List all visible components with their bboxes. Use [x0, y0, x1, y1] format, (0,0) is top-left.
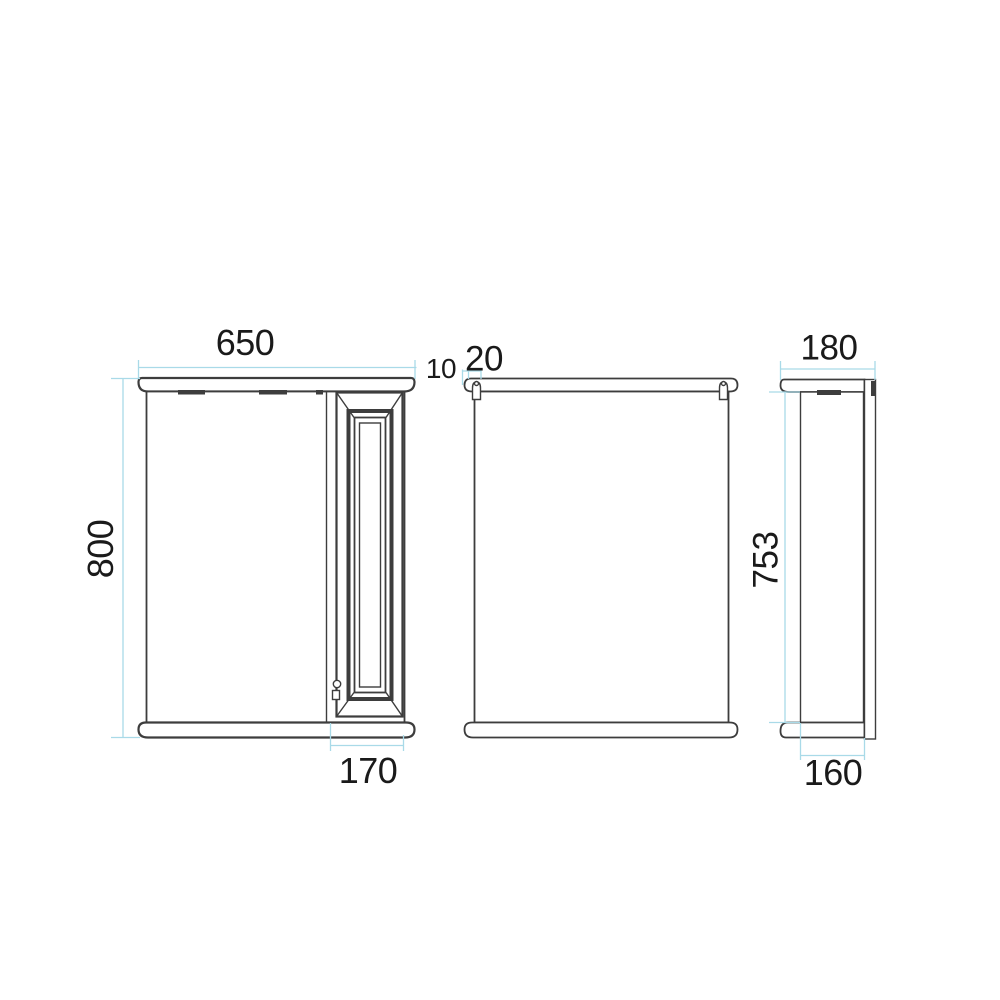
dim-label-hanger-small: 10 [426, 355, 456, 383]
lamp-slot-mark [316, 390, 323, 395]
dim-650 [138, 360, 417, 379]
mirror-cabinet-drawing [0, 0, 1000, 1000]
side-bottom-plinth [781, 723, 865, 738]
hanger-keyhole [475, 382, 479, 386]
back-panel-body [475, 392, 729, 723]
front-bottom-plinth [139, 723, 415, 738]
lamp-slot-mark [178, 390, 205, 395]
hanger-keyhole [722, 382, 726, 386]
back-bottom-plinth [465, 723, 738, 738]
back-view [465, 379, 738, 738]
lamp-slot-mark [259, 390, 287, 395]
dim-label-side-bottom-depth: 160 [804, 755, 863, 791]
lamp-slot-mark [817, 390, 841, 395]
side-view [781, 380, 876, 740]
door-handle-plate [333, 691, 340, 700]
dim-label-side-body-height: 753 [749, 532, 784, 589]
side-cabinet-body [801, 392, 864, 723]
technical-drawing-canvas: 650 10 20 800 753 170 180 160 [0, 0, 1000, 1000]
dim-label-door-width: 170 [339, 753, 398, 789]
front-view [139, 378, 415, 738]
dim-label-front-height: 800 [83, 520, 119, 579]
dim-label-side-depth: 180 [801, 331, 858, 366]
dim-label-hanger-large: 20 [465, 342, 503, 377]
hanger-side-mark [871, 381, 876, 396]
back-top-rail [465, 379, 738, 392]
side-back-panel [865, 380, 876, 740]
front-top-cornice [139, 378, 415, 392]
dim-label-front-width: 650 [216, 325, 275, 361]
door-handle-knob [333, 680, 340, 687]
